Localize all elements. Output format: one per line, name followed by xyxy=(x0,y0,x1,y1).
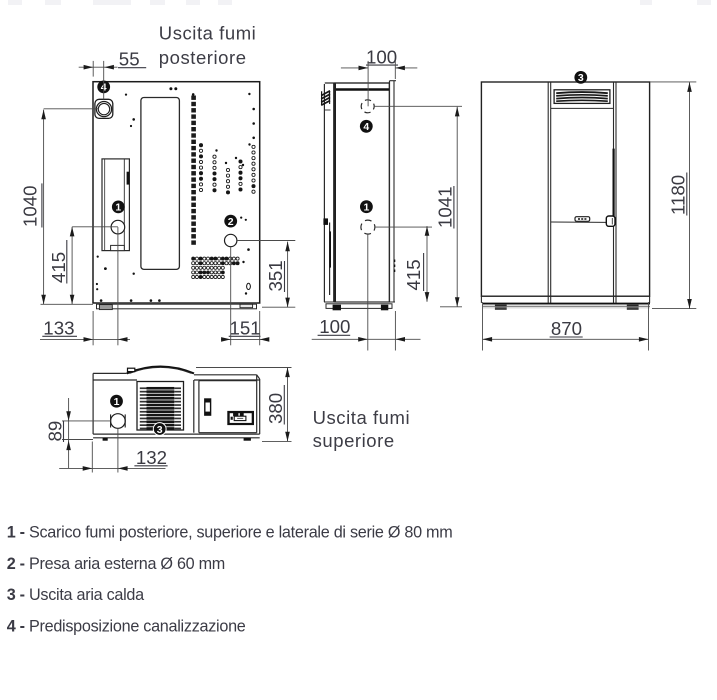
svg-text:870: 870 xyxy=(551,318,582,339)
svg-text:1 - Scarico fumi posteriore,: 1 - Scarico fumi posteriore, superiore e… xyxy=(7,523,453,541)
svg-text:3: 3 xyxy=(578,72,584,84)
svg-text:3 - Uscita aria calda: 3 - Uscita aria calda xyxy=(7,586,144,604)
svg-text:132: 132 xyxy=(136,447,167,468)
svg-text:55: 55 xyxy=(119,48,140,69)
svg-text:superiore: superiore xyxy=(313,430,395,451)
svg-text:2 - Presa aria esterna Ø 60 m: 2 - Presa aria esterna Ø 60 mm xyxy=(7,555,225,573)
svg-text:1180: 1180 xyxy=(668,175,689,215)
svg-text:Uscita fumi: Uscita fumi xyxy=(159,23,257,44)
svg-text:2: 2 xyxy=(228,216,234,228)
svg-text:415: 415 xyxy=(48,252,69,283)
svg-text:415: 415 xyxy=(403,259,424,290)
svg-text:100: 100 xyxy=(366,47,397,68)
svg-text:4: 4 xyxy=(363,121,369,133)
svg-text:1: 1 xyxy=(115,202,121,214)
svg-text:1: 1 xyxy=(114,396,120,408)
svg-text:4 - Predisposizione canalizza: 4 - Predisposizione canalizzazione xyxy=(7,618,246,636)
svg-text:1: 1 xyxy=(363,202,369,214)
svg-text:89: 89 xyxy=(45,421,66,442)
svg-text:1040: 1040 xyxy=(20,185,41,227)
svg-text:133: 133 xyxy=(43,318,74,339)
svg-text:3: 3 xyxy=(157,424,163,436)
svg-text:posteriore: posteriore xyxy=(159,47,247,68)
svg-text:380: 380 xyxy=(265,393,286,424)
svg-text:100: 100 xyxy=(319,316,350,337)
svg-text:351: 351 xyxy=(265,260,286,291)
svg-text:Uscita fumi: Uscita fumi xyxy=(313,407,411,428)
svg-text:1041: 1041 xyxy=(435,186,456,228)
svg-text:151: 151 xyxy=(230,318,261,339)
